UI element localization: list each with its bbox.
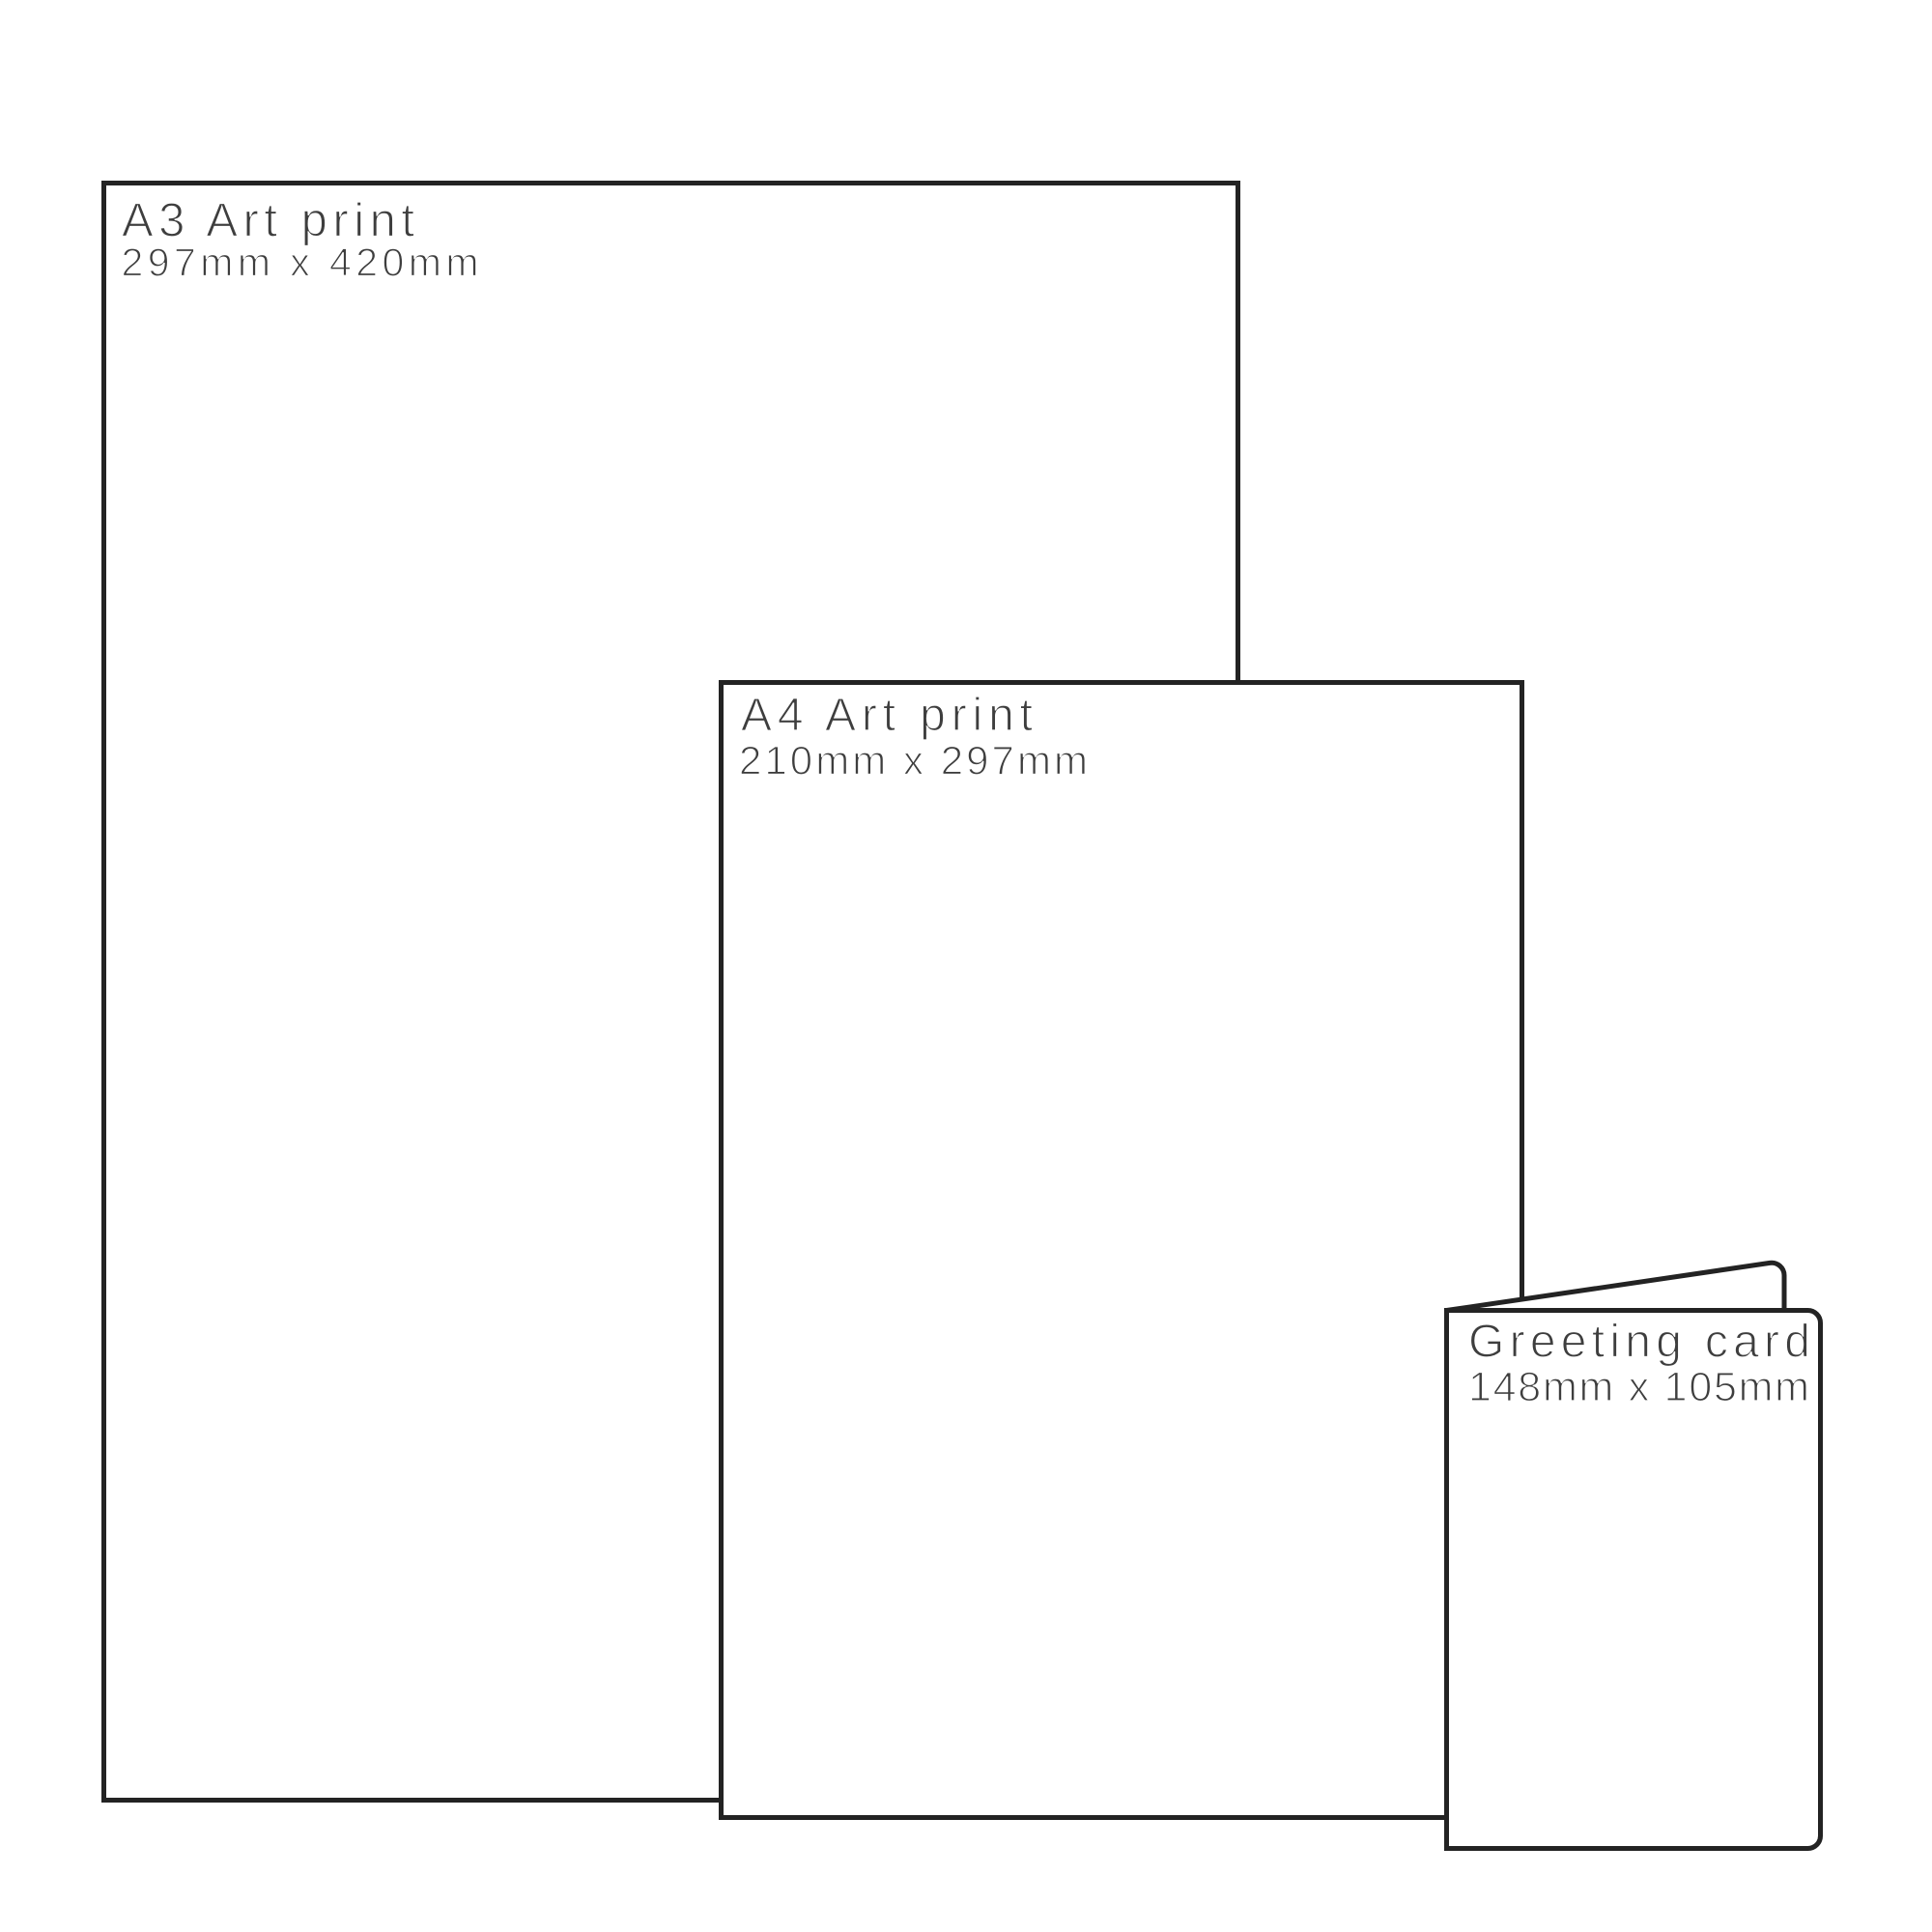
svg-text:297mm x 420mm: 297mm x 420mm [122, 240, 479, 284]
svg-text:148mm x 105mm: 148mm x 105mm [1468, 1364, 1809, 1410]
svg-text:210mm x 297mm: 210mm x 297mm [739, 737, 1088, 782]
svg-text:A4 Art print: A4 Art print [741, 690, 1033, 741]
svg-text:A3 Art print: A3 Art print [122, 194, 414, 246]
